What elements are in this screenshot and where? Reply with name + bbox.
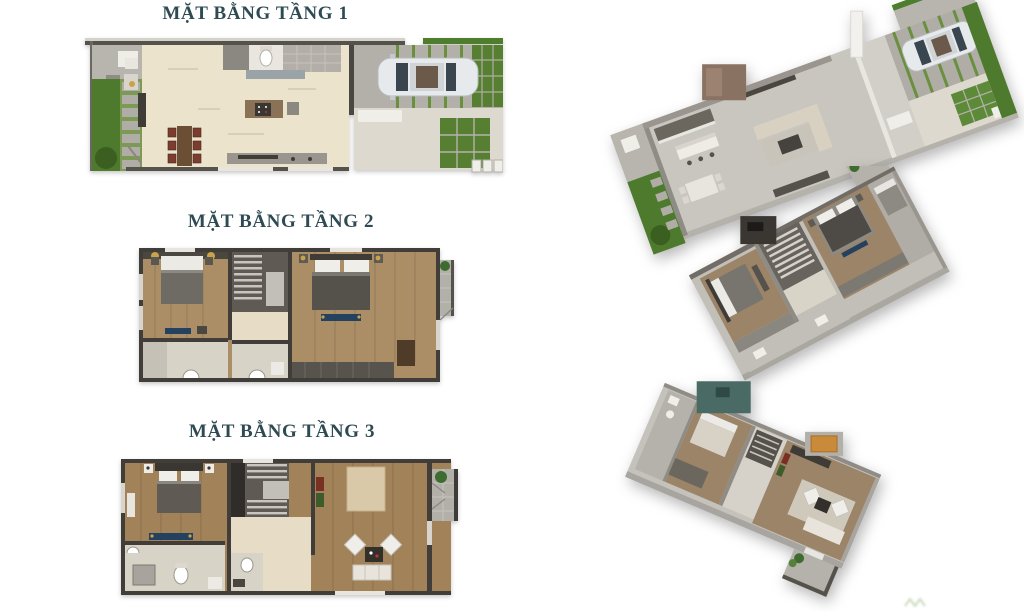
- coffee-table: [365, 547, 383, 562]
- landing-floor: [232, 312, 288, 340]
- window-gap: [427, 521, 432, 545]
- shower: [133, 565, 155, 585]
- teal-accent-wall: [697, 381, 751, 413]
- toilet-icon: [260, 50, 272, 66]
- dining-table: [168, 126, 201, 166]
- kitchen-counter: [246, 70, 305, 79]
- tv-icon: [747, 222, 763, 231]
- hallway-floor: [231, 517, 311, 553]
- washer-icon: [208, 577, 222, 589]
- railing: [454, 469, 458, 521]
- art-wall: [805, 432, 843, 456]
- top-edging: [85, 38, 405, 41]
- plant-icon: [316, 493, 324, 507]
- washer-icon: [271, 362, 284, 375]
- top-wall: [85, 41, 405, 45]
- floorplan-brochure: MẶT BẰNG TẦNG 1: [0, 0, 1024, 611]
- stair-landing-block: [263, 481, 289, 499]
- window-gap: [288, 167, 333, 171]
- window-gap: [139, 306, 143, 330]
- toilet-icon: [174, 566, 188, 584]
- carport-wall: [349, 45, 354, 115]
- bed-icon: [161, 256, 203, 304]
- stepping-stones: [122, 82, 140, 169]
- render-3d-floor-2: [688, 166, 950, 381]
- sink-icon: [241, 558, 253, 572]
- stair-void: [231, 461, 245, 517]
- tv-icon: [238, 155, 278, 159]
- artwork: [811, 436, 837, 452]
- balcony: [440, 260, 454, 320]
- window-gap: [243, 459, 273, 463]
- nightstand: [151, 257, 159, 265]
- carport: [349, 38, 503, 172]
- storage-cabinet: [358, 110, 402, 122]
- sunroof: [416, 66, 438, 88]
- plant-icon: [435, 471, 447, 483]
- bathrooms: [143, 338, 288, 378]
- window-gap: [335, 591, 385, 595]
- divider-wall: [851, 11, 863, 57]
- bench: [321, 314, 361, 321]
- stair-landing-block: [266, 272, 284, 306]
- bed-icon: [155, 463, 203, 513]
- shower: [143, 342, 167, 378]
- sofa: [353, 565, 391, 580]
- window-gap: [121, 483, 125, 513]
- render-3d-floor-3: [620, 380, 912, 608]
- watermark-fragment: [903, 598, 933, 607]
- window-gap: [436, 320, 440, 350]
- bench: [149, 533, 193, 540]
- floorplan-2d-floor-2: [135, 244, 455, 386]
- window-gap: [330, 248, 362, 252]
- window-gap: [139, 274, 143, 300]
- floorplan-2d-floor-3: [113, 453, 461, 600]
- rug: [347, 467, 385, 511]
- floorplan-2d-floor-1: [78, 38, 503, 175]
- dresser: [127, 493, 135, 517]
- cabinet: [397, 340, 415, 366]
- pantry-cabinet: [138, 93, 146, 127]
- car-top-view: [378, 54, 478, 100]
- window-gap: [218, 167, 273, 171]
- nightstand: [205, 257, 213, 265]
- wardrobe: [292, 362, 394, 378]
- hedge-strip: [423, 38, 503, 44]
- stove-icon: [255, 103, 271, 116]
- bench: [165, 328, 191, 334]
- dresser: [197, 326, 207, 334]
- stair-feature-wall: [740, 216, 776, 244]
- marble-feature-wall: [702, 64, 746, 100]
- picture-frame: [716, 387, 730, 397]
- planter-boxes: [472, 160, 503, 172]
- floor-3-title: MẶT BẰNG TẦNG 3: [132, 422, 432, 443]
- plant-icon: [316, 477, 324, 491]
- window-gap: [165, 248, 195, 252]
- floor-1-title: MẶT BẰNG TẦNG 1: [78, 4, 433, 25]
- balcony: [432, 469, 458, 521]
- plant-icon: [440, 261, 450, 271]
- floor-2-title: MẶT BẰNG TẦNG 2: [131, 212, 431, 233]
